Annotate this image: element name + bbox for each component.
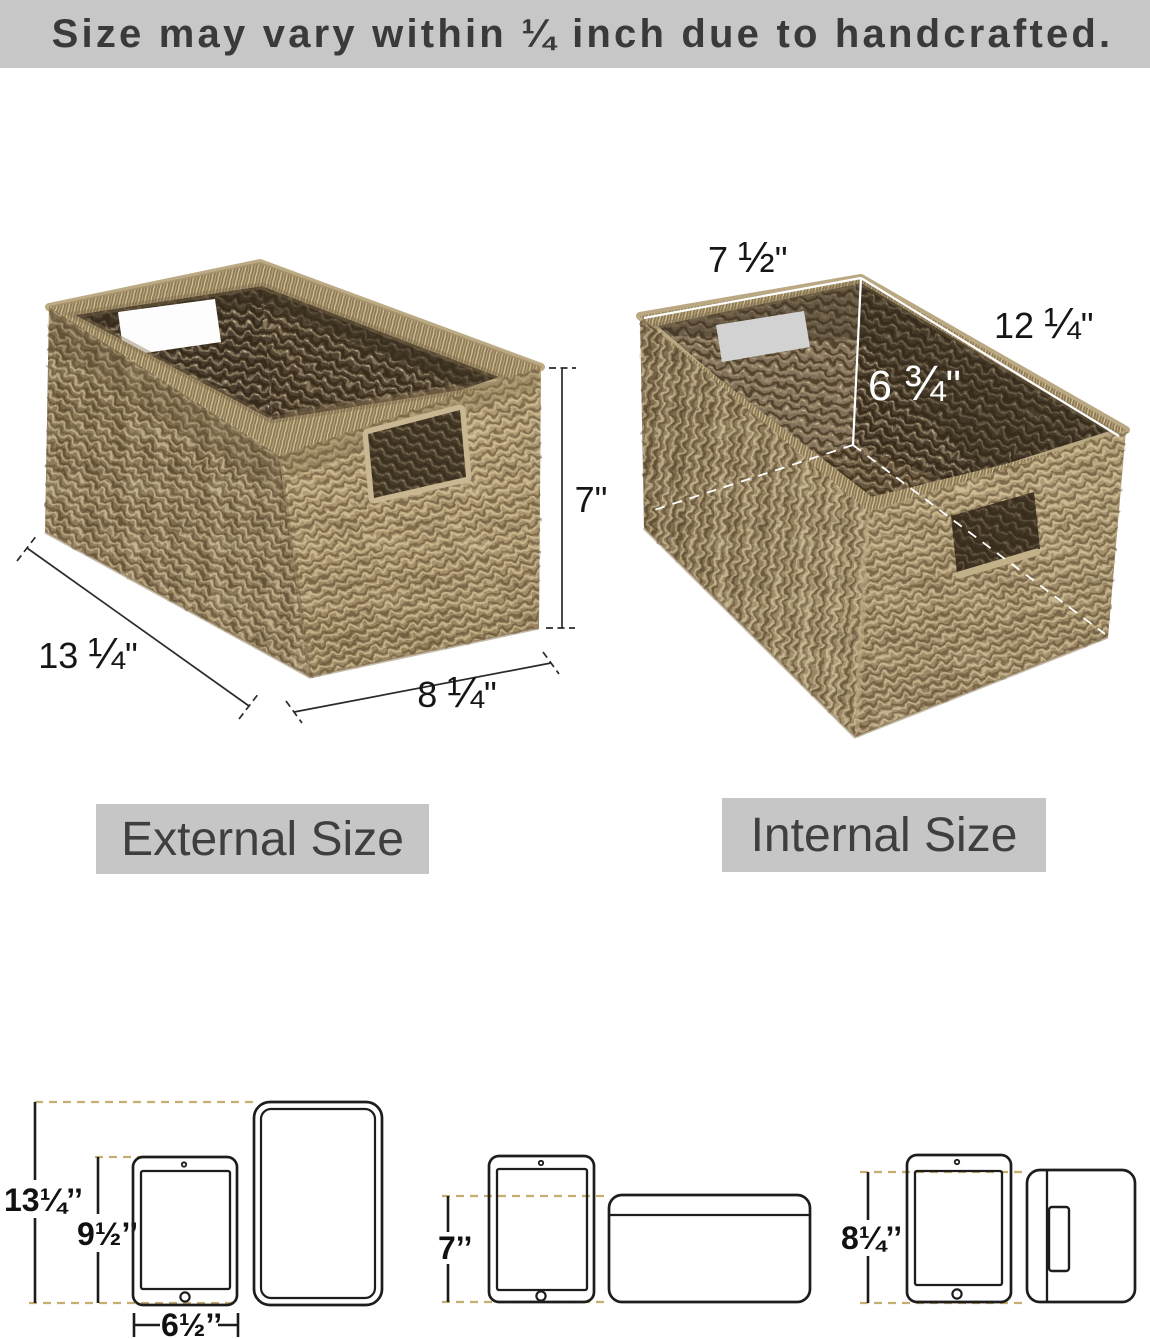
svg-text:13¼’’: 13¼’’ <box>4 1182 83 1218</box>
svg-text:8 ¼": 8 ¼" <box>417 668 497 717</box>
svg-text:7": 7" <box>575 479 608 520</box>
svg-text:7 ½": 7 ½" <box>708 233 788 282</box>
svg-text:13 ¼": 13 ¼" <box>38 629 138 678</box>
svg-text:6½’’: 6½’’ <box>161 1307 222 1339</box>
svg-text:7’’: 7’’ <box>438 1230 472 1266</box>
svg-text:6 ¾": 6 ¾" <box>868 355 961 411</box>
svg-text:12 ¼": 12 ¼" <box>994 299 1094 348</box>
svg-text:9½’’: 9½’’ <box>77 1216 138 1252</box>
svg-text:8¼’’: 8¼’’ <box>841 1220 902 1256</box>
